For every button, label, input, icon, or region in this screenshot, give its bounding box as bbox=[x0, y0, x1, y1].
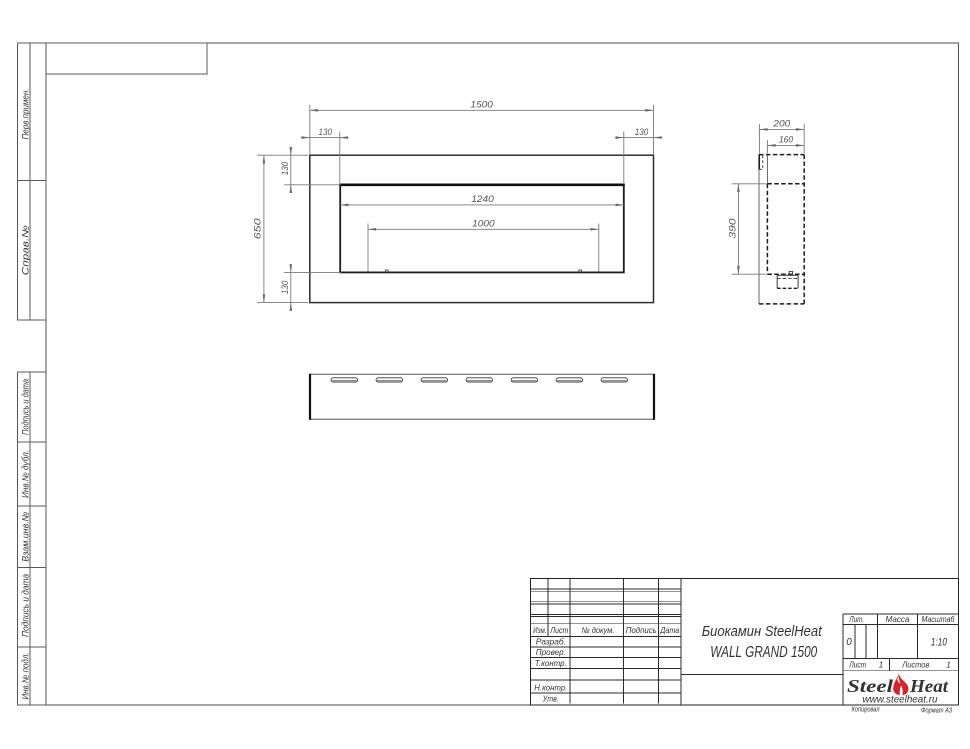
svg-text:Листов: Листов bbox=[901, 660, 929, 670]
svg-text:200: 200 bbox=[772, 119, 791, 130]
svg-text:№ докум.: № докум. bbox=[582, 625, 615, 635]
svg-text:Разраб.: Разраб. bbox=[536, 636, 566, 646]
svg-text:Справ.№: Справ.№ bbox=[21, 225, 31, 275]
svg-text:1: 1 bbox=[879, 660, 884, 670]
svg-text:Масштаб: Масштаб bbox=[922, 614, 955, 624]
svg-text:Биокамин SteelHeat: Биокамин SteelHeat bbox=[702, 623, 823, 640]
svg-text:Масса: Масса bbox=[886, 614, 910, 624]
svg-text:Подпись: Подпись bbox=[626, 625, 657, 635]
svg-text:Провер.: Провер. bbox=[536, 647, 566, 657]
svg-text:130: 130 bbox=[635, 127, 649, 138]
svg-text:1000: 1000 bbox=[472, 219, 495, 230]
svg-text:160: 160 bbox=[779, 135, 794, 146]
svg-text:1500: 1500 bbox=[470, 100, 493, 111]
svg-text:Копировал: Копировал bbox=[852, 705, 880, 714]
svg-text:130: 130 bbox=[319, 127, 333, 138]
svg-text:Инв.№ подл.: Инв.№ подл. bbox=[21, 653, 31, 700]
svg-text:Н.контр.: Н.контр. bbox=[534, 683, 567, 693]
svg-text:Steel: Steel bbox=[847, 676, 893, 696]
svg-text:Подпись и дата: Подпись и дата bbox=[21, 574, 31, 637]
svg-text:Лит.: Лит. bbox=[848, 614, 864, 624]
svg-text:Взам.инв.№: Взам.инв.№ bbox=[21, 512, 31, 562]
svg-text:130: 130 bbox=[280, 161, 291, 175]
svg-text:Инв.№ дубл.: Инв.№ дубл. bbox=[21, 450, 31, 498]
svg-text:1:10: 1:10 bbox=[931, 636, 948, 648]
svg-text:Изм.: Изм. bbox=[533, 625, 547, 635]
svg-text:Подпись и дата: Подпись и дата bbox=[21, 379, 31, 435]
svg-text:Формат А3: Формат А3 bbox=[921, 706, 952, 715]
svg-text:Heat: Heat bbox=[909, 676, 949, 696]
svg-text:390: 390 bbox=[728, 218, 739, 239]
svg-text:Утв.: Утв. bbox=[542, 694, 559, 704]
svg-text:Т.контр.: Т.контр. bbox=[535, 658, 567, 668]
svg-text:650: 650 bbox=[253, 217, 264, 239]
svg-text:130: 130 bbox=[280, 280, 291, 294]
svg-text:WALL GRAND 1500: WALL GRAND 1500 bbox=[710, 644, 817, 661]
svg-text:1: 1 bbox=[946, 660, 951, 670]
svg-text:1240: 1240 bbox=[471, 194, 494, 205]
svg-text:Лист: Лист bbox=[848, 660, 866, 670]
svg-text:Дата: Дата bbox=[659, 625, 679, 635]
svg-text:0: 0 bbox=[846, 637, 852, 648]
svg-text:Лист: Лист bbox=[549, 625, 568, 635]
svg-text:Перв.примен.: Перв.примен. bbox=[21, 89, 31, 140]
